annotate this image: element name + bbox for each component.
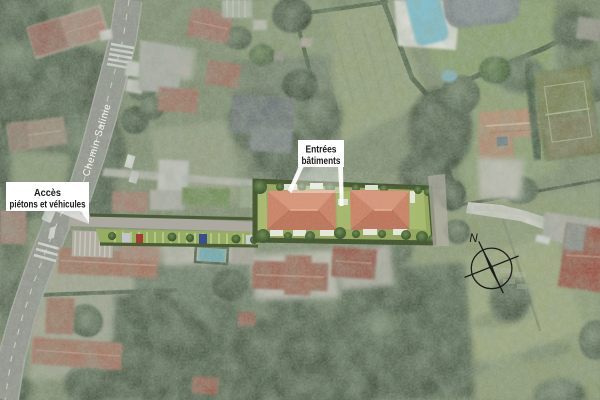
- svg-text:piétons et véhicules: piétons et véhicules: [10, 199, 86, 211]
- svg-text:Entrées: Entrées: [306, 145, 337, 156]
- svg-text:bâtiments: bâtiments: [302, 156, 341, 167]
- svg-text:N: N: [469, 233, 478, 245]
- svg-text:Accès: Accès: [34, 187, 61, 199]
